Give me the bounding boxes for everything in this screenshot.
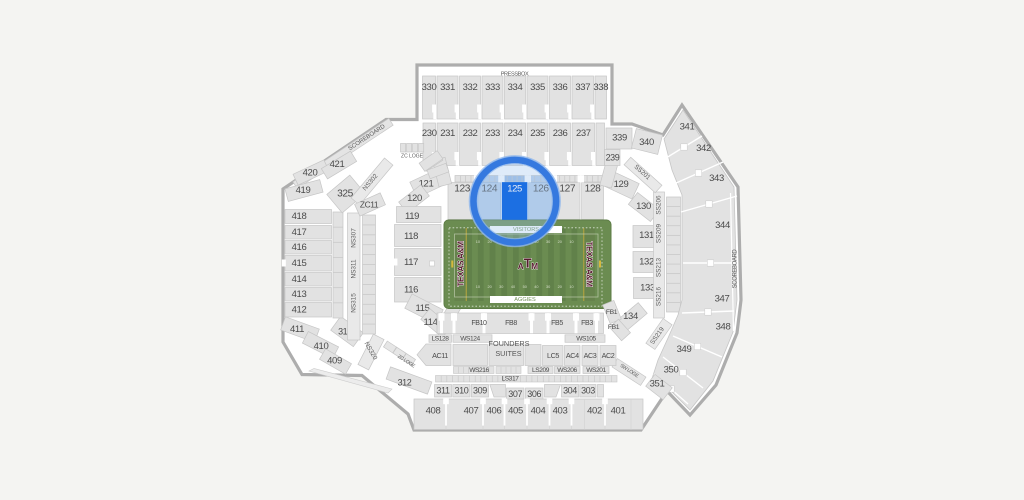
svg-text:20: 20 xyxy=(487,240,491,244)
svg-text:ZC LOGE: ZC LOGE xyxy=(401,154,424,160)
svg-text:412: 412 xyxy=(292,304,307,315)
svg-text:330: 330 xyxy=(422,82,437,93)
svg-text:131: 131 xyxy=(639,230,654,241)
svg-text:NS311: NS311 xyxy=(350,259,357,279)
svg-text:405: 405 xyxy=(508,406,523,417)
svg-text:331: 331 xyxy=(440,82,455,93)
svg-text:310: 310 xyxy=(454,386,468,396)
svg-text:403: 403 xyxy=(553,406,568,417)
svg-text:421: 421 xyxy=(330,159,345,170)
svg-text:336: 336 xyxy=(553,82,568,93)
svg-text:347: 347 xyxy=(715,294,730,305)
svg-text:409: 409 xyxy=(327,356,342,367)
svg-text:SS213: SS213 xyxy=(656,257,663,277)
svg-text:415: 415 xyxy=(292,258,307,269)
svg-text:40: 40 xyxy=(534,285,538,289)
svg-text:20: 20 xyxy=(487,285,491,289)
svg-text:401: 401 xyxy=(611,406,626,417)
svg-text:119: 119 xyxy=(405,211,419,222)
svg-text:235: 235 xyxy=(530,128,545,139)
svg-text:50: 50 xyxy=(523,285,527,289)
svg-text:134: 134 xyxy=(623,311,638,322)
svg-text:114: 114 xyxy=(424,317,438,328)
svg-text:237: 237 xyxy=(576,128,591,139)
svg-text:418: 418 xyxy=(292,211,307,222)
svg-text:307: 307 xyxy=(508,389,522,399)
svg-text:417: 417 xyxy=(292,227,307,238)
svg-text:FB10: FB10 xyxy=(471,320,487,327)
svg-text:30: 30 xyxy=(546,285,550,289)
svg-text:30: 30 xyxy=(546,240,550,244)
svg-text:351: 351 xyxy=(650,379,665,390)
svg-text:406: 406 xyxy=(487,406,502,417)
svg-text:334: 334 xyxy=(508,82,523,93)
svg-text:337: 337 xyxy=(575,82,590,93)
svg-text:128: 128 xyxy=(585,184,602,195)
svg-text:233: 233 xyxy=(485,128,500,139)
svg-text:117: 117 xyxy=(404,257,418,268)
svg-text:118: 118 xyxy=(404,231,418,242)
svg-text:M: M xyxy=(531,262,538,271)
svg-text:AC3: AC3 xyxy=(584,351,597,360)
svg-text:343: 343 xyxy=(709,173,724,184)
svg-text:WS216: WS216 xyxy=(469,367,489,374)
svg-text:116: 116 xyxy=(404,285,418,296)
svg-text:231: 231 xyxy=(440,128,455,139)
svg-text:129: 129 xyxy=(614,179,629,190)
svg-text:332: 332 xyxy=(463,82,478,93)
svg-text:414: 414 xyxy=(292,274,307,285)
svg-text:335: 335 xyxy=(530,82,545,93)
svg-text:120: 120 xyxy=(407,193,422,204)
svg-text:309: 309 xyxy=(473,386,487,396)
svg-text:304: 304 xyxy=(563,386,577,396)
svg-text:239: 239 xyxy=(606,153,620,163)
svg-text:NS307: NS307 xyxy=(350,228,357,248)
svg-text:338: 338 xyxy=(593,82,608,93)
svg-text:FB5: FB5 xyxy=(551,320,563,327)
svg-text:A: A xyxy=(518,262,524,271)
svg-text:FB8: FB8 xyxy=(505,320,517,327)
svg-text:420: 420 xyxy=(303,167,318,178)
svg-text:SS206: SS206 xyxy=(656,195,663,215)
svg-text:416: 416 xyxy=(292,242,307,253)
svg-text:413: 413 xyxy=(292,289,307,300)
svg-text:FOUNDERS: FOUNDERS xyxy=(489,339,530,348)
svg-text:LS128: LS128 xyxy=(431,335,449,342)
svg-text:348: 348 xyxy=(716,322,731,333)
svg-text:133: 133 xyxy=(640,283,655,294)
svg-text:312: 312 xyxy=(398,378,412,388)
svg-text:T: T xyxy=(524,257,532,271)
svg-text:303: 303 xyxy=(581,386,595,396)
svg-text:339: 339 xyxy=(612,133,627,144)
svg-text:350: 350 xyxy=(664,365,679,376)
svg-text:127: 127 xyxy=(559,184,576,195)
svg-text:WS105: WS105 xyxy=(576,335,596,342)
svg-text:AC4: AC4 xyxy=(566,351,579,360)
svg-text:10: 10 xyxy=(476,285,480,289)
svg-text:SS209: SS209 xyxy=(656,223,663,243)
svg-text:20: 20 xyxy=(558,285,562,289)
svg-text:FB1: FB1 xyxy=(608,324,620,331)
svg-text:LS209: LS209 xyxy=(532,367,550,374)
svg-text:LC5: LC5 xyxy=(547,351,559,360)
svg-text:WS124: WS124 xyxy=(460,335,480,342)
svg-text:10: 10 xyxy=(569,240,573,244)
svg-text:311: 311 xyxy=(436,386,450,396)
svg-text:ZC11: ZC11 xyxy=(360,200,379,210)
svg-text:TEXAS A&M: TEXAS A&M xyxy=(456,241,466,287)
svg-text:40: 40 xyxy=(511,285,515,289)
svg-text:306: 306 xyxy=(527,389,541,399)
svg-text:WS201: WS201 xyxy=(586,367,606,374)
svg-text:10: 10 xyxy=(476,240,480,244)
svg-text:230: 230 xyxy=(422,128,437,139)
svg-text:30: 30 xyxy=(499,285,503,289)
svg-text:408: 408 xyxy=(426,406,441,417)
svg-text:236: 236 xyxy=(553,128,568,139)
svg-text:LS317: LS317 xyxy=(501,375,519,382)
svg-text:WS206: WS206 xyxy=(557,367,577,374)
svg-text:FB3: FB3 xyxy=(581,320,593,327)
svg-text:FB1: FB1 xyxy=(606,309,618,316)
svg-text:SUITES: SUITES xyxy=(495,349,521,358)
svg-text:SS216: SS216 xyxy=(656,286,663,306)
svg-text:TEXAS A&M: TEXAS A&M xyxy=(584,241,594,287)
svg-text:402: 402 xyxy=(587,406,602,417)
svg-text:AC2: AC2 xyxy=(602,351,615,360)
svg-text:AGGIES: AGGIES xyxy=(514,297,536,303)
svg-text:AC11: AC11 xyxy=(432,351,448,360)
svg-text:342: 342 xyxy=(696,143,711,154)
svg-text:349: 349 xyxy=(677,344,692,355)
svg-text:404: 404 xyxy=(531,406,546,417)
svg-text:125: 125 xyxy=(507,184,522,195)
svg-text:232: 232 xyxy=(463,128,478,139)
svg-text:SCOREBOARD: SCOREBOARD xyxy=(733,249,739,289)
svg-text:234: 234 xyxy=(508,128,523,139)
svg-text:130: 130 xyxy=(636,201,651,212)
svg-text:20: 20 xyxy=(558,240,562,244)
svg-text:340: 340 xyxy=(639,137,654,148)
svg-text:411: 411 xyxy=(290,324,304,335)
svg-text:123: 123 xyxy=(454,184,471,195)
svg-text:407: 407 xyxy=(464,406,479,417)
svg-text:333: 333 xyxy=(485,82,500,93)
svg-text:132: 132 xyxy=(639,257,654,268)
svg-text:419: 419 xyxy=(296,185,311,196)
svg-text:10: 10 xyxy=(569,285,573,289)
svg-text:344: 344 xyxy=(715,220,730,231)
svg-text:NS315: NS315 xyxy=(350,293,357,313)
svg-text:341: 341 xyxy=(680,122,695,133)
